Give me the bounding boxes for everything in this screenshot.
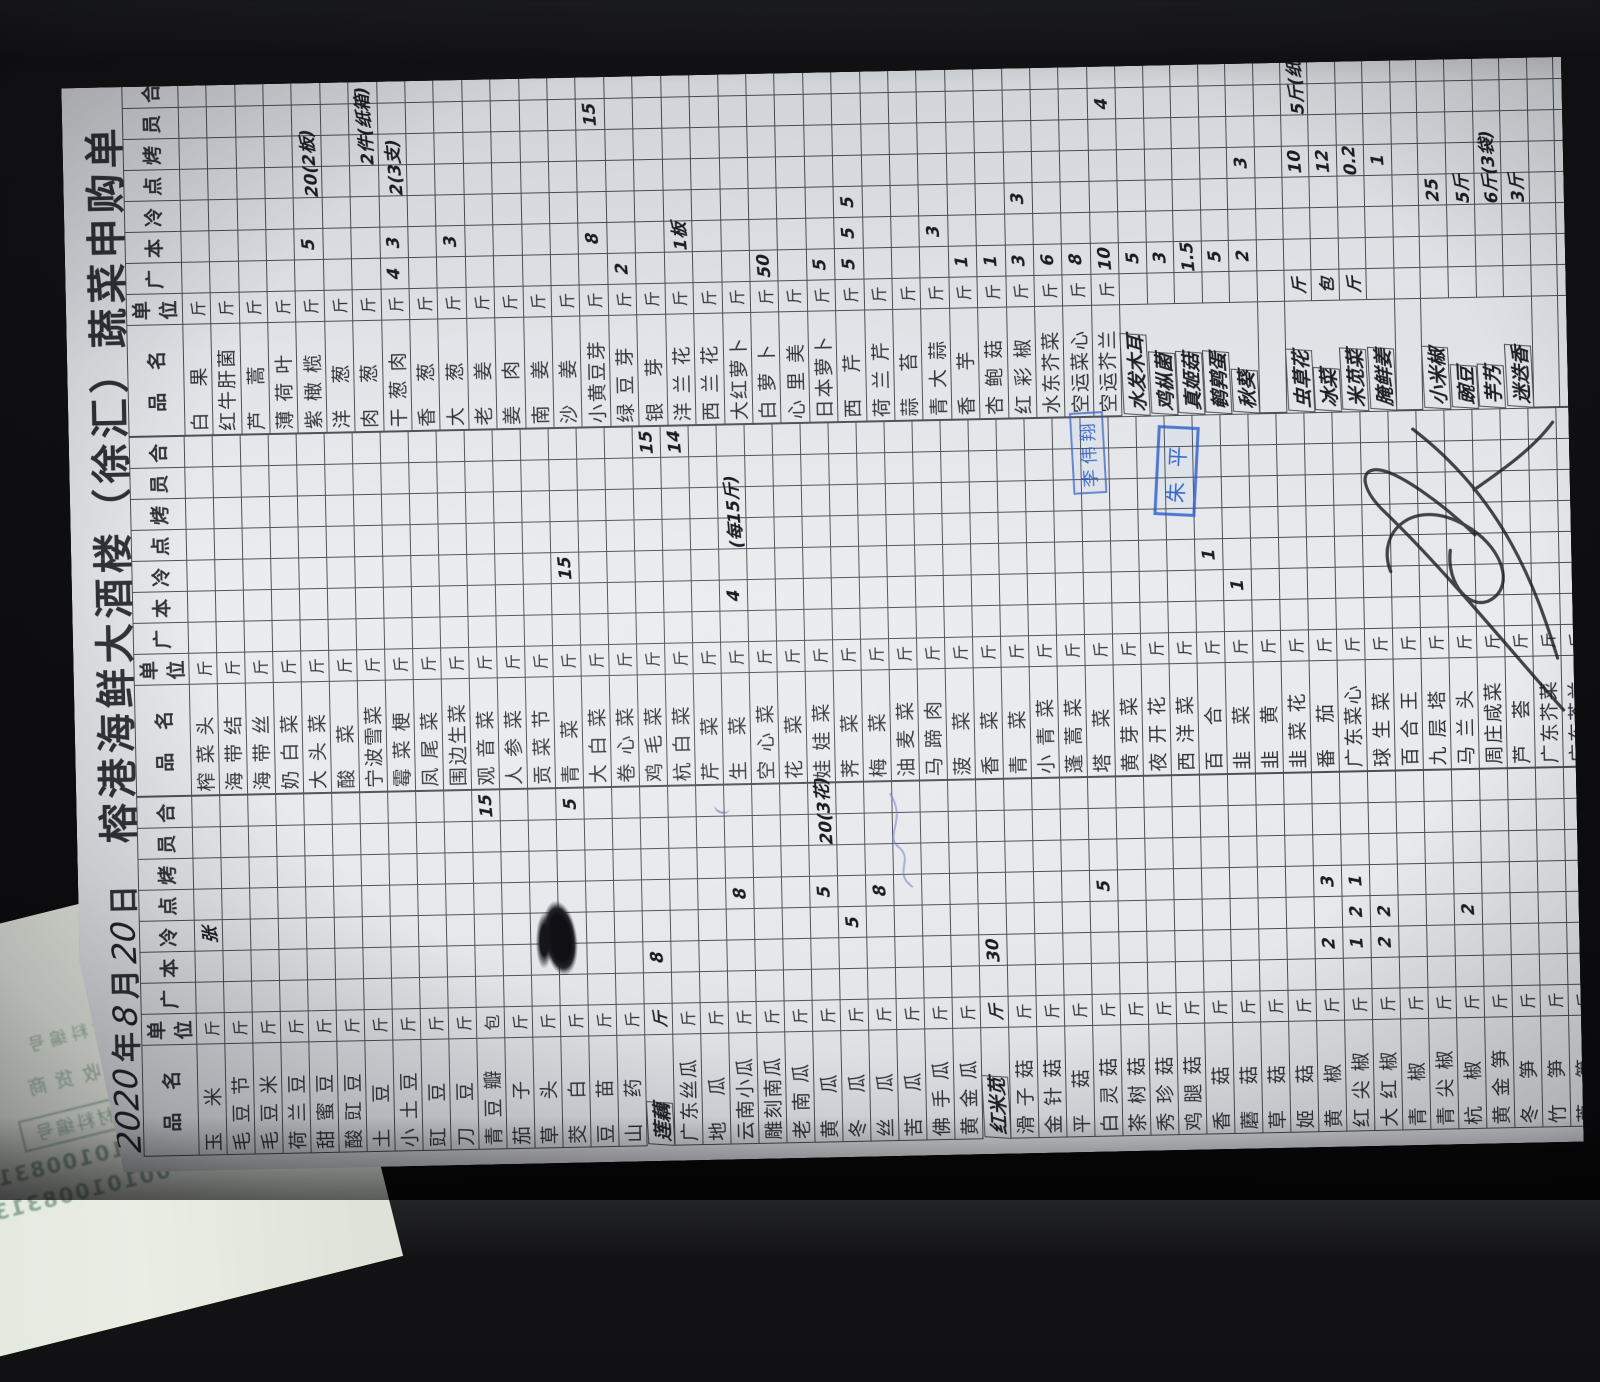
qty-yuan	[605, 458, 634, 490]
qty-leng	[634, 190, 663, 222]
qty-yuan	[493, 460, 522, 492]
qty-he	[856, 422, 885, 454]
qty-dian	[942, 513, 971, 545]
qty-guang	[328, 619, 357, 651]
qty-he	[717, 64, 746, 96]
unit-cell: 斤	[560, 1005, 589, 1037]
qty-leng	[1032, 182, 1061, 214]
unit-cell: 斤	[217, 652, 246, 684]
item-unit: 斤	[895, 646, 914, 662]
unit-cell: 斤	[438, 287, 467, 319]
qty-dian	[1528, 141, 1555, 173]
qty-ben	[1567, 922, 1596, 954]
qty-he	[416, 791, 445, 823]
qty-dian	[407, 164, 436, 196]
qty-guang	[1483, 955, 1512, 987]
qty-he	[464, 430, 493, 462]
unit-cell	[1147, 273, 1175, 305]
unit-cell: 斤	[1034, 275, 1063, 307]
qty-dian	[1117, 149, 1146, 181]
qty-yuan	[437, 461, 466, 493]
qty-leng	[390, 916, 419, 948]
qty-leng	[1118, 900, 1147, 932]
qty-ben	[1200, 209, 1228, 241]
qty-guang	[384, 618, 413, 650]
qty-he	[1479, 769, 1508, 801]
qty-ben	[720, 219, 749, 251]
qty-ben	[475, 945, 504, 977]
qty-kao	[829, 484, 858, 516]
qty-ben	[1483, 924, 1512, 956]
unit-cell: 斤	[296, 290, 325, 322]
qty-leng	[1529, 172, 1556, 204]
qty-yuan	[948, 811, 977, 843]
qty-kao	[1249, 475, 1278, 507]
item-name: 薄荷叶	[268, 322, 299, 434]
qty-he	[1086, 57, 1115, 89]
qty-he	[603, 67, 632, 99]
qty-he	[940, 420, 969, 452]
unit-cell: 斤	[1092, 994, 1121, 1026]
qty-dian	[1026, 511, 1055, 543]
qty-leng	[250, 918, 279, 950]
qty-ben	[1259, 928, 1288, 960]
qty-ben	[1033, 213, 1062, 245]
handwritten-qty: 3	[440, 235, 461, 247]
unit-cell: 斤	[329, 650, 358, 682]
handwritten-qty: 5	[298, 238, 319, 250]
qty-dian	[1250, 506, 1279, 538]
item-name: 西芹	[836, 310, 867, 422]
qty-dian	[1581, 139, 1600, 171]
item-name: 青菜	[1001, 667, 1031, 779]
qty-dian	[1285, 866, 1314, 898]
qty-leng	[607, 551, 636, 583]
handwritten-qty: 2	[1374, 936, 1395, 948]
qty-dian	[1453, 862, 1482, 894]
qty-kao	[1580, 108, 1600, 140]
item-name: 老姜	[467, 318, 498, 430]
item-name: 马蹄肉	[917, 668, 947, 780]
table-group-1: 品 名单位广本冷点烤员合玉米斤张毛豆节斤毛豆米斤荷兰豆斤甜蜜豆斤酸豇豆斤土豆斤小…	[136, 765, 1600, 1157]
qty-guang	[888, 607, 917, 639]
qty-dian	[586, 880, 615, 912]
unit-cell: 斤	[336, 1010, 365, 1042]
item-unit: 斤	[1294, 997, 1313, 1013]
qty-kao	[1033, 840, 1062, 872]
unit-cell: 斤	[1028, 635, 1057, 667]
qty-leng	[187, 560, 216, 592]
qty-leng	[887, 545, 916, 577]
qty-yuan	[831, 93, 860, 125]
qty-dian	[1509, 861, 1538, 893]
qty-leng	[439, 554, 468, 586]
unit-cell: 斤	[944, 637, 973, 669]
unit-cell: 斤	[466, 287, 495, 319]
qty-leng	[418, 915, 447, 947]
column-header: 品 名	[142, 1044, 199, 1156]
qty-dian	[975, 152, 1004, 184]
qty-yuan	[1060, 808, 1089, 840]
qty-ben	[1091, 932, 1120, 964]
qty-guang	[188, 622, 217, 654]
qty-yuan	[976, 810, 1005, 842]
item-name: 毛豆节	[225, 1043, 255, 1155]
qty-guang	[720, 611, 749, 643]
qty-leng	[436, 194, 465, 226]
qty-kao	[889, 123, 918, 155]
qty-ben	[1337, 207, 1365, 239]
qty-yuan	[1499, 79, 1528, 111]
qty-guang	[465, 256, 494, 288]
qty-yuan	[803, 94, 832, 126]
qty-guang	[1311, 238, 1339, 270]
qty-he	[1304, 412, 1333, 444]
qty-ben	[355, 587, 384, 619]
item-name: 广东丝瓜	[673, 1034, 703, 1146]
unit-cell: 斤	[721, 642, 750, 674]
item-unit: 斤	[1285, 277, 1310, 295]
qty-leng	[1482, 893, 1511, 925]
column-header: 广	[133, 622, 189, 654]
qty-he	[1498, 48, 1527, 80]
item-name: 荷兰豆	[281, 1042, 311, 1154]
unit-cell	[1584, 263, 1600, 295]
qty-leng	[775, 547, 804, 579]
qty-ben	[1474, 204, 1502, 236]
qty-guang	[531, 975, 560, 1007]
handwritten-qty: 5	[838, 227, 859, 239]
qty-guang	[352, 258, 381, 290]
qty-leng	[719, 549, 748, 581]
qty-dian: 12	[1309, 145, 1337, 177]
unit-cell: 斤	[1196, 632, 1225, 664]
qty-yuan	[661, 97, 690, 129]
qty-yuan	[1002, 90, 1031, 122]
unit-cell: 斤	[1588, 623, 1600, 655]
item-unit: 斤	[622, 1011, 641, 1027]
qty-kao	[1173, 837, 1202, 869]
qty-he	[192, 796, 221, 828]
qty-guang	[1588, 592, 1600, 624]
item-name: 红牛肝菌	[211, 323, 242, 435]
qty-guang	[356, 618, 385, 650]
handwritten-qty: 1.5	[1176, 242, 1199, 272]
qty-guang	[1175, 961, 1204, 993]
unit-cell: 斤	[777, 640, 806, 672]
qty-ben: 2	[1371, 926, 1400, 958]
qty-yuan	[377, 103, 406, 135]
column-header: 烤	[123, 138, 179, 170]
qty-yuan	[1480, 800, 1509, 832]
qty-leng	[294, 197, 323, 229]
qty-leng	[1117, 180, 1146, 212]
unit-cell: 斤	[1308, 629, 1337, 661]
item-name: 霉菜梗	[385, 680, 415, 792]
item-unit: 斤	[982, 1003, 1007, 1021]
qty-dian	[1033, 871, 1062, 903]
item-name: 丝瓜	[869, 1030, 899, 1142]
qty-yuan	[718, 95, 747, 127]
item-name: 空心菜	[749, 672, 779, 784]
qty-guang: 5	[1201, 240, 1229, 272]
qty-kao	[1025, 480, 1054, 512]
item-name: 酸豇豆	[337, 1041, 367, 1153]
qty-guang	[944, 606, 973, 638]
qty-dian: 5	[809, 876, 838, 908]
qty-he	[831, 62, 860, 94]
date-month-value: 8	[105, 1004, 145, 1028]
qty-kao	[945, 122, 974, 154]
item-unit: 斤	[1315, 637, 1334, 653]
qty-ben	[1587, 561, 1600, 593]
qty-he	[576, 428, 605, 460]
qty-dian	[1201, 868, 1230, 900]
qty-kao	[353, 494, 382, 526]
qty-dian	[1257, 866, 1286, 898]
handwritten-qty: 1	[1198, 548, 1219, 560]
qty-leng: 3	[1004, 183, 1033, 215]
unit-cell: 斤	[980, 996, 1009, 1028]
qty-he	[968, 419, 997, 451]
qty-he: 5	[556, 788, 585, 820]
qty-dian	[438, 523, 467, 555]
unit-cell: 斤	[267, 291, 296, 323]
item-name: 香菇	[1205, 1023, 1235, 1135]
qty-ben: 3	[919, 215, 948, 247]
qty-guang	[1168, 601, 1197, 633]
unit-cell: 斤	[1568, 984, 1597, 1016]
item-name: 滑子菇	[1009, 1027, 1039, 1139]
qty-ben	[551, 583, 580, 615]
qty-guang	[748, 610, 777, 642]
item-unit: 斤	[330, 297, 349, 313]
unit-cell: 斤	[889, 638, 918, 670]
item-unit: 斤	[188, 300, 207, 316]
qty-dian	[774, 516, 803, 548]
qty-dian	[977, 872, 1006, 904]
qty-dian	[194, 889, 223, 921]
qty-dian	[1031, 151, 1060, 183]
qty-yuan	[185, 467, 214, 499]
item-unit: 斤	[245, 299, 264, 315]
qty-yuan	[1277, 444, 1306, 476]
header-row: 品 名单位广本冷点烤员合	[129, 436, 192, 796]
qty-yuan	[434, 101, 463, 133]
qty-dian	[614, 880, 643, 912]
unit-cell: 斤	[749, 641, 778, 673]
qty-dian	[577, 160, 606, 192]
qty-ben	[1419, 205, 1448, 237]
qty-guang	[1511, 954, 1540, 986]
qty-ben	[1007, 934, 1036, 966]
qty-leng	[1309, 176, 1337, 208]
qty-ben	[1231, 929, 1260, 961]
item-unit: 斤	[1007, 643, 1026, 659]
unit-cell: 斤	[693, 642, 722, 674]
unit-cell: 斤	[1260, 990, 1289, 1022]
qty-guang	[951, 966, 980, 998]
qty-kao	[264, 136, 293, 168]
item-unit: 斤	[1231, 639, 1250, 655]
qty-kao	[1061, 839, 1090, 871]
qty-kao	[1254, 115, 1281, 147]
qty-yuan	[388, 823, 417, 855]
qty-he	[836, 782, 865, 814]
item-name: 贡菜节	[525, 677, 555, 789]
qty-yuan	[547, 99, 576, 131]
item-name: 菠菜	[945, 668, 975, 780]
qty-he	[177, 76, 206, 108]
qty-ben	[1228, 209, 1257, 241]
unit-cell	[1394, 267, 1421, 299]
qty-dian	[321, 166, 350, 198]
qty-he	[1507, 768, 1536, 800]
qty-kao	[1509, 830, 1538, 862]
item-name: 白萝卜	[751, 312, 782, 424]
qty-guang	[664, 612, 693, 644]
item-name: 韭菜花	[1281, 661, 1311, 773]
qty-leng	[943, 544, 972, 576]
qty-ben	[1147, 931, 1176, 963]
item-unit: 斤	[1042, 1003, 1061, 1019]
qty-yuan	[556, 819, 585, 851]
handwritten-qty: 8	[1066, 253, 1087, 265]
item-name: 油麦菜	[889, 669, 919, 781]
qty-he	[919, 780, 948, 812]
qty-he	[1423, 770, 1452, 802]
qty-dian	[1397, 863, 1426, 895]
qty-leng	[1060, 181, 1089, 213]
item-unit: 斤	[529, 293, 548, 309]
qty-he	[268, 434, 297, 466]
qty-kao	[1341, 834, 1370, 866]
item-unit: 斤	[1126, 1001, 1145, 1017]
qty-leng	[918, 184, 947, 216]
unit-cell	[1476, 266, 1504, 298]
unit-cell: 斤	[778, 280, 807, 312]
qty-dian: 0.2	[1336, 145, 1364, 177]
item-unit: 斤	[258, 1019, 277, 1035]
qty-yuan	[689, 456, 718, 488]
qty-yuan	[1143, 87, 1171, 119]
item-unit: 斤	[870, 286, 889, 302]
unit-cell: 斤	[1540, 984, 1569, 1016]
unit-cell	[1448, 266, 1476, 298]
unit-cell: 斤	[196, 1013, 225, 1045]
qty-kao	[1335, 114, 1363, 146]
qty-kao	[548, 130, 577, 162]
item-unit: 斤	[223, 660, 242, 676]
qty-ben	[783, 938, 812, 970]
item-unit: 斤	[1014, 1003, 1033, 1019]
column-header: 员	[130, 467, 186, 499]
qty-guang	[1455, 955, 1484, 987]
handwritten-qty: 1	[1346, 936, 1367, 948]
unit-cell: 斤	[1344, 989, 1373, 1021]
qty-he	[1276, 413, 1305, 445]
unit-cell	[1229, 271, 1258, 303]
qty-guang	[1056, 604, 1085, 636]
qty-kao	[1171, 117, 1199, 149]
qty-ben	[749, 219, 778, 251]
qty-leng	[1582, 170, 1600, 202]
qty-he	[1248, 413, 1277, 445]
qty-he	[1170, 55, 1198, 87]
qty-yuan	[213, 466, 242, 498]
qty-leng	[922, 904, 951, 936]
qty-yuan	[490, 100, 519, 132]
qty-kao	[213, 497, 242, 529]
item-name: 花菜	[777, 671, 807, 783]
qty-dian	[781, 876, 810, 908]
unit-cell: 斤	[1288, 990, 1317, 1022]
qty-ben	[408, 226, 437, 258]
column-header: 点	[124, 169, 180, 201]
item-unit: 斤	[302, 298, 321, 314]
qty-he	[263, 74, 292, 106]
qty-kao	[1116, 118, 1145, 150]
item-unit: 斤	[785, 288, 804, 304]
unit-cell: 斤	[352, 289, 381, 321]
qty-kao	[613, 849, 642, 881]
qty-ben	[671, 941, 700, 973]
qty-leng	[663, 190, 692, 222]
qty-yuan	[462, 101, 491, 133]
handwritten-qty: 3	[1317, 875, 1338, 887]
header-row: 品 名单位广本冷点烤员合	[137, 796, 200, 1156]
qty-guang	[1315, 958, 1344, 990]
qty-kao	[803, 125, 832, 157]
qty-yuan	[1253, 84, 1280, 116]
qty-he	[291, 73, 320, 105]
unit-cell: 斤	[1006, 275, 1035, 307]
qty-leng	[222, 919, 251, 951]
qty-yuan	[528, 820, 557, 852]
item-unit: 斤	[1595, 631, 1600, 647]
qty-kao	[1305, 474, 1334, 506]
qty-dian: 2(3支)	[378, 165, 407, 197]
column-header: 本	[140, 951, 196, 983]
item-name: 香乌笋	[1597, 1014, 1600, 1126]
item-name: 黄芽菜	[1113, 664, 1143, 776]
qty-yuan	[500, 820, 529, 852]
item-unit: 斤	[1518, 993, 1537, 1009]
unit-cell: 斤	[413, 648, 442, 680]
qty-kao	[1397, 832, 1426, 864]
qty-leng	[747, 548, 776, 580]
qty-yuan	[1004, 810, 1033, 842]
qty-dian	[634, 519, 663, 551]
item-unit: 斤	[1406, 995, 1425, 1011]
unit-cell: 斤	[392, 1009, 421, 1041]
qty-ben	[887, 576, 916, 608]
qty-ben	[867, 937, 896, 969]
qty-yuan	[801, 454, 830, 486]
item-unit: 斤	[839, 647, 858, 663]
qty-kao	[1417, 112, 1446, 144]
qty-ben: 4	[719, 580, 748, 612]
qty-leng	[467, 554, 496, 586]
handwritten-qty: 1	[1227, 579, 1248, 591]
qty-kao	[1453, 831, 1482, 863]
item-name: 草菇	[1261, 1021, 1291, 1133]
qty-kao	[491, 131, 520, 163]
item-name: 荷兰芹	[864, 309, 895, 421]
qty-dian: 1	[1363, 144, 1392, 176]
qty-he	[436, 430, 465, 462]
qty-he	[859, 62, 888, 94]
